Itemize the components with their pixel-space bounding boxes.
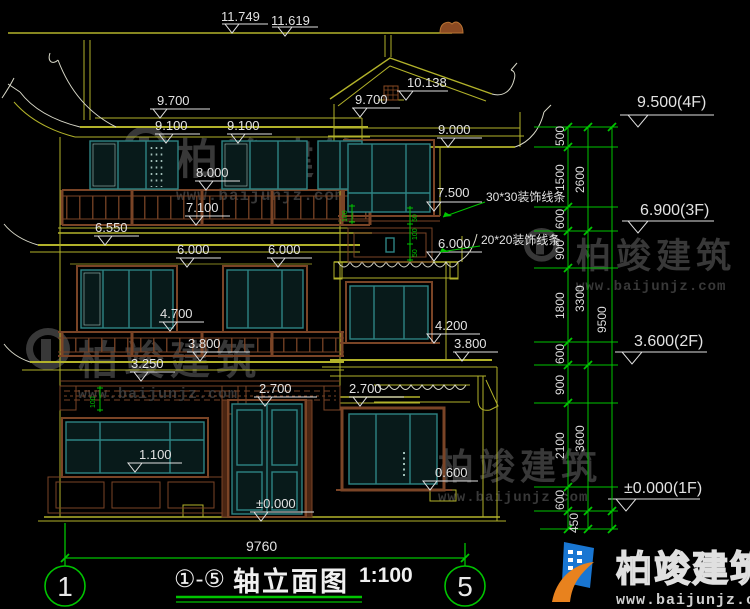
title-axis-range: ①-⑤ [174, 565, 225, 594]
elev-label: 4.700 [160, 307, 193, 321]
chain-dim: 900 [554, 375, 566, 395]
chain-dim: 600 [554, 490, 566, 510]
chain-dim: 1500 [554, 164, 566, 191]
window-glass [66, 141, 437, 514]
chain-subtotal: 3600 [574, 425, 586, 452]
overall-width-dim: 9760 [246, 539, 277, 554]
drawing-title: 轴立面图 [233, 560, 349, 599]
chain-dim: 450 [568, 513, 580, 533]
chain-total: 9500 [596, 306, 608, 333]
elev-label: 7.500 [437, 186, 470, 200]
annotation-trim20: 20*20装饰线条 [481, 234, 560, 247]
elev-label: 3.250 [131, 357, 164, 371]
site-brand-name: 柏竣建筑 [616, 540, 750, 592]
elev-label: 9.700 [157, 94, 190, 108]
floor-label-1f: ±0.000(1F) [624, 481, 702, 498]
elev-label: 1.100 [139, 448, 172, 462]
cad-canvas: 柏竣建筑 www.baijunjz.com 柏竣建筑 www.baijunjz.… [0, 0, 750, 609]
micro-dim: 100 [412, 228, 419, 240]
elev-label: 3.800 [454, 337, 487, 351]
floor-label-4f: 9.500(4F) [637, 95, 706, 112]
chain-dim: 2100 [554, 432, 566, 459]
micro-dim: 100 [90, 396, 97, 408]
elev-label-ridge2: 11.619 [271, 14, 310, 28]
elev-label-ridge: 11.749 [221, 10, 260, 24]
chain-dim: 900 [554, 240, 566, 260]
elev-label: 6.000 [438, 237, 471, 251]
chain-subtotal: 2600 [574, 166, 586, 193]
site-brand: 柏竣建筑 www.baijunjz.com [616, 540, 750, 609]
elev-label: 3.800 [188, 337, 221, 351]
drawing-scale: 1:100 [359, 564, 413, 588]
floor-label-2f: 3.600(2F) [634, 334, 703, 351]
elev-label: 9.100 [155, 119, 188, 133]
elev-label-gable: 10.138 [407, 76, 447, 90]
chain-dim: 500 [554, 126, 566, 146]
axis-bubble-5: 5 [450, 571, 480, 603]
elev-label: 9.700 [355, 93, 388, 107]
chain-dim: 600 [554, 344, 566, 364]
elev-label: 6.000 [268, 243, 301, 257]
elev-label: 9.100 [227, 119, 260, 133]
micro-dim: 100 [342, 210, 349, 222]
elev-label: 2.700 [259, 382, 292, 396]
annotation-trim30: 30*30装饰线条 [486, 191, 565, 204]
elev-label: 6.000 [177, 243, 210, 257]
micro-dim: 50 [412, 249, 419, 257]
elev-label: 2.700 [349, 382, 382, 396]
micro-dim: 50 [412, 214, 419, 222]
elev-label: 7.100 [186, 201, 219, 215]
chain-subtotal: 3300 [574, 285, 586, 312]
chain-dim: 600 [554, 209, 566, 229]
elev-label-ground: ±0.000 [256, 497, 296, 511]
elev-label: 9.000 [438, 123, 471, 137]
chain-dim: 1800 [554, 292, 566, 319]
elev-label: 4.200 [435, 319, 468, 333]
axis-bubble-1: 1 [50, 571, 80, 603]
floor-label-3f: 6.900(3F) [640, 203, 709, 220]
site-brand-url: www.baijunjz.com [616, 592, 750, 609]
elev-label: 6.550 [95, 221, 128, 235]
elev-label: 8.000 [196, 166, 229, 180]
elev-label: 0.600 [435, 466, 468, 480]
